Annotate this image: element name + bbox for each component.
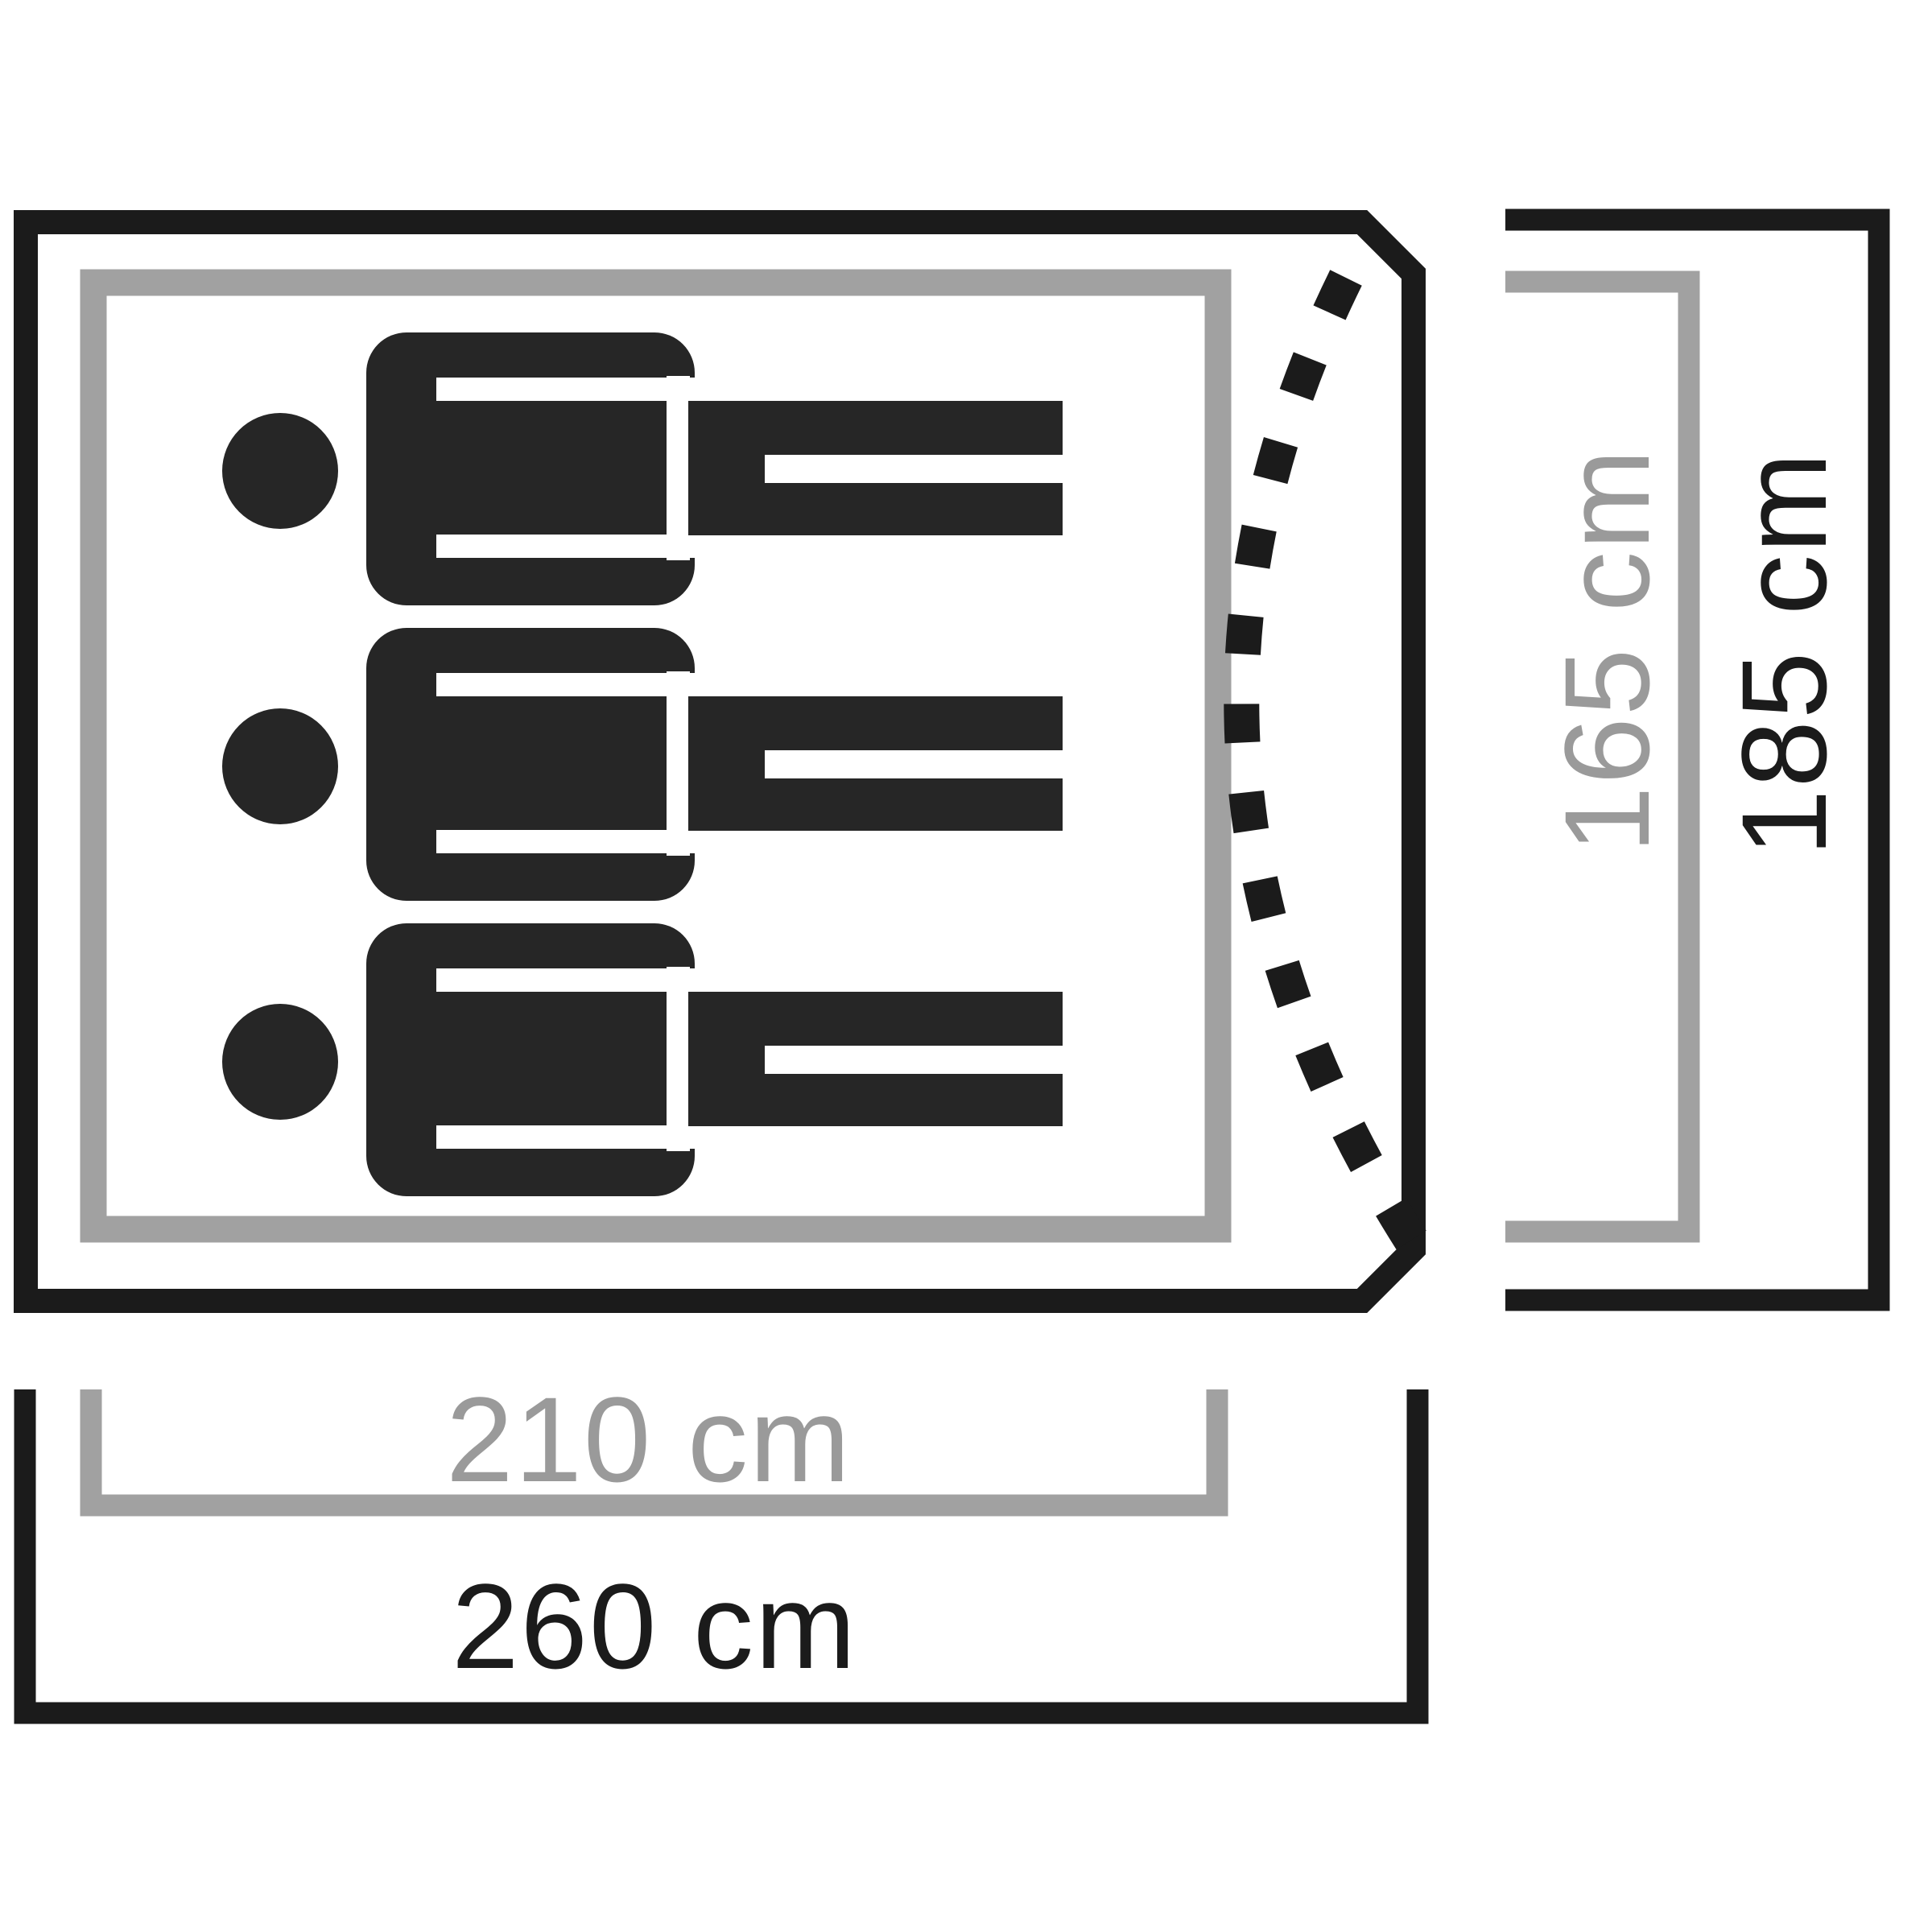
door-dashed-arc [1241,278,1415,1246]
tent-floorplan-diagram: 210 cm 260 cm 165 cm 185 cm [0,0,1932,1932]
inner-depth-label: 165 cm [1539,448,1674,853]
person-figure [222,923,1071,1196]
outer-depth-label: 185 cm [1716,451,1851,857]
person-figure [222,332,1071,605]
outer-width-label: 260 cm [452,1558,857,1694]
person-figures [222,332,1071,1196]
inner-width-label: 210 cm [446,1372,852,1507]
person-figure [222,628,1071,901]
